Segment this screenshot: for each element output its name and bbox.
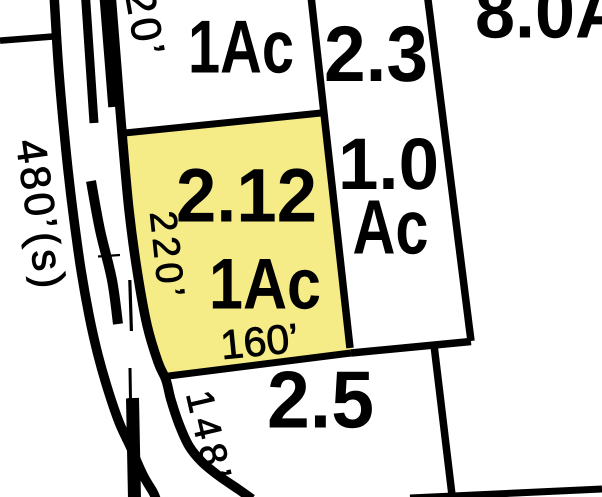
svg-text:2.3: 2.3: [324, 9, 428, 98]
svg-text:160’: 160’: [218, 315, 300, 368]
svg-text:2.5: 2.5: [267, 356, 374, 446]
svg-text:1Ac: 1Ac: [188, 5, 294, 89]
svg-text:2.12: 2.12: [176, 153, 317, 238]
svg-text:8.0A: 8.0A: [475, 0, 602, 54]
svg-text:Ac: Ac: [353, 185, 429, 271]
svg-text:1Ac: 1Ac: [209, 245, 321, 325]
